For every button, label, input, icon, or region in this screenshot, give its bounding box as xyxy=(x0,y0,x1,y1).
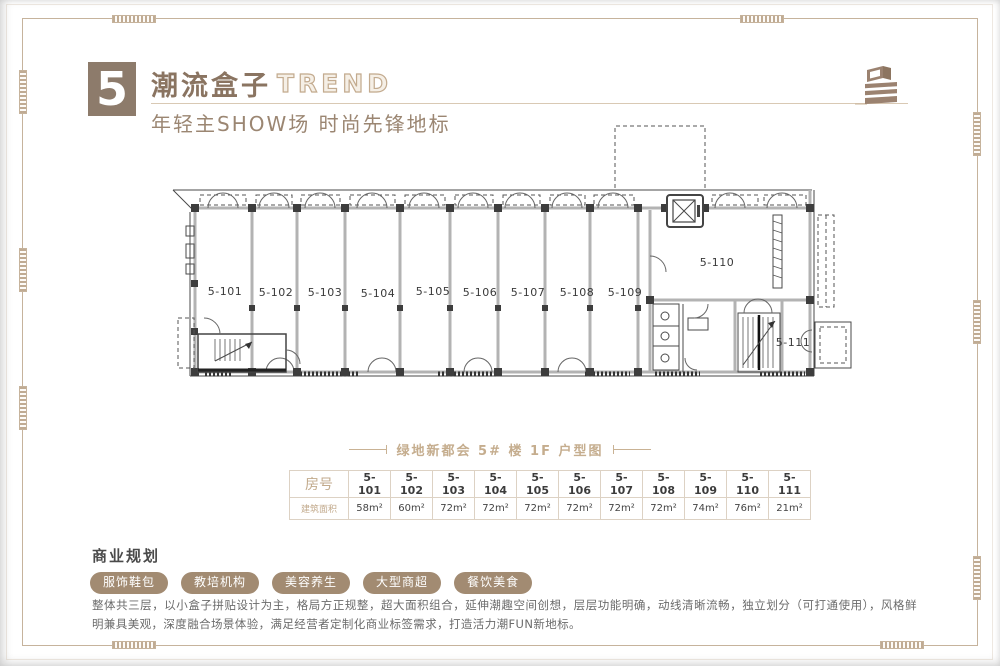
caption-ornament-right xyxy=(613,449,651,450)
unit-label: 5-105 xyxy=(416,285,450,298)
section-number-box: 5 xyxy=(88,62,136,116)
plan-caption-row: 绿地新都会 5# 楼 1F 户型图 xyxy=(0,440,1000,459)
area-cell: 72m² xyxy=(559,498,601,520)
area-header: 建筑面积 xyxy=(290,498,349,520)
room-number-row: 房号 5-1015-1025-1035-1045-1055-1065-1075-… xyxy=(290,471,811,498)
business-tag: 餐饮美食 xyxy=(454,572,532,594)
room-number-cell: 5-106 xyxy=(559,471,601,498)
frame-ornament xyxy=(973,300,981,344)
business-tag: 大型商超 xyxy=(363,572,441,594)
room-number-cell: 5-108 xyxy=(643,471,685,498)
frame-ornament xyxy=(112,15,156,23)
unit-label: 5-110 xyxy=(700,256,734,269)
business-planning-heading: 商业规划 xyxy=(92,545,160,566)
unit-label: 5-103 xyxy=(308,286,342,299)
business-description: 整体共三层，以小盒子拼贴设计为主，格局方正规整，超大面积组合，延伸潮趣空间创想，… xyxy=(92,596,917,634)
unit-label: 5-107 xyxy=(511,286,545,299)
room-number-cell: 5-111 xyxy=(769,471,811,498)
area-cell: 72m² xyxy=(517,498,559,520)
brochure-page: 5 潮流盒子 TREND 年轻主SHOW场 时尚先锋地标 xyxy=(0,0,1000,666)
unit-label: 5-106 xyxy=(463,286,497,299)
room-number-cell: 5-101 xyxy=(349,471,391,498)
business-tag: 服饰鞋包 xyxy=(90,572,168,594)
room-number-cell: 5-110 xyxy=(727,471,769,498)
frame-ornament xyxy=(973,556,981,600)
area-cell: 21m² xyxy=(769,498,811,520)
frame-ornament xyxy=(973,112,981,156)
frame-ornament xyxy=(19,386,27,430)
area-cell: 72m² xyxy=(433,498,475,520)
frame-ornament xyxy=(112,641,156,649)
room-number-cell: 5-103 xyxy=(433,471,475,498)
building-icon xyxy=(853,60,909,112)
area-cell: 58m² xyxy=(349,498,391,520)
room-number-header: 房号 xyxy=(290,471,349,498)
section-number: 5 xyxy=(96,66,128,112)
unit-label: 5-102 xyxy=(259,286,293,299)
unit-label: 5-101 xyxy=(208,285,242,298)
unit-label: 5-109 xyxy=(608,286,642,299)
frame-ornament xyxy=(880,641,924,649)
page-title-english: TREND xyxy=(277,69,392,98)
business-tag: 教培机构 xyxy=(181,572,259,594)
page-title: 潮流盒子 xyxy=(151,64,271,103)
frame-ornament xyxy=(19,248,27,292)
caption-ornament-left xyxy=(349,449,387,450)
area-table: 房号 5-1015-1025-1035-1045-1055-1065-1075-… xyxy=(289,470,811,520)
area-cell: 72m² xyxy=(601,498,643,520)
business-tags: 服饰鞋包教培机构美容养生大型商超餐饮美食 xyxy=(90,572,532,594)
room-number-cell: 5-105 xyxy=(517,471,559,498)
frame-ornament xyxy=(19,70,27,114)
floor-plan-drawing: 5-1015-1025-1035-1045-1055-1065-1075-108… xyxy=(160,118,860,403)
floor-plan: 5-1015-1025-1035-1045-1055-1065-1075-108… xyxy=(160,118,860,403)
plan-caption: 绿地新都会 5# 楼 1F 户型图 xyxy=(397,440,604,459)
unit-label: 5-111 xyxy=(776,336,810,349)
unit-label: 5-104 xyxy=(361,287,395,300)
area-cell: 74m² xyxy=(685,498,727,520)
room-number-cell: 5-102 xyxy=(391,471,433,498)
frame-ornament xyxy=(740,15,784,23)
area-row: 建筑面积 58m²60m²72m²72m²72m²72m²72m²72m²74m… xyxy=(290,498,811,520)
room-number-cell: 5-109 xyxy=(685,471,727,498)
area-cell: 72m² xyxy=(643,498,685,520)
area-cell: 72m² xyxy=(475,498,517,520)
business-tag: 美容养生 xyxy=(272,572,350,594)
room-number-cell: 5-107 xyxy=(601,471,643,498)
area-cell: 60m² xyxy=(391,498,433,520)
header-divider xyxy=(151,103,908,104)
area-cell: 76m² xyxy=(727,498,769,520)
room-number-cell: 5-104 xyxy=(475,471,517,498)
unit-label: 5-108 xyxy=(560,286,594,299)
